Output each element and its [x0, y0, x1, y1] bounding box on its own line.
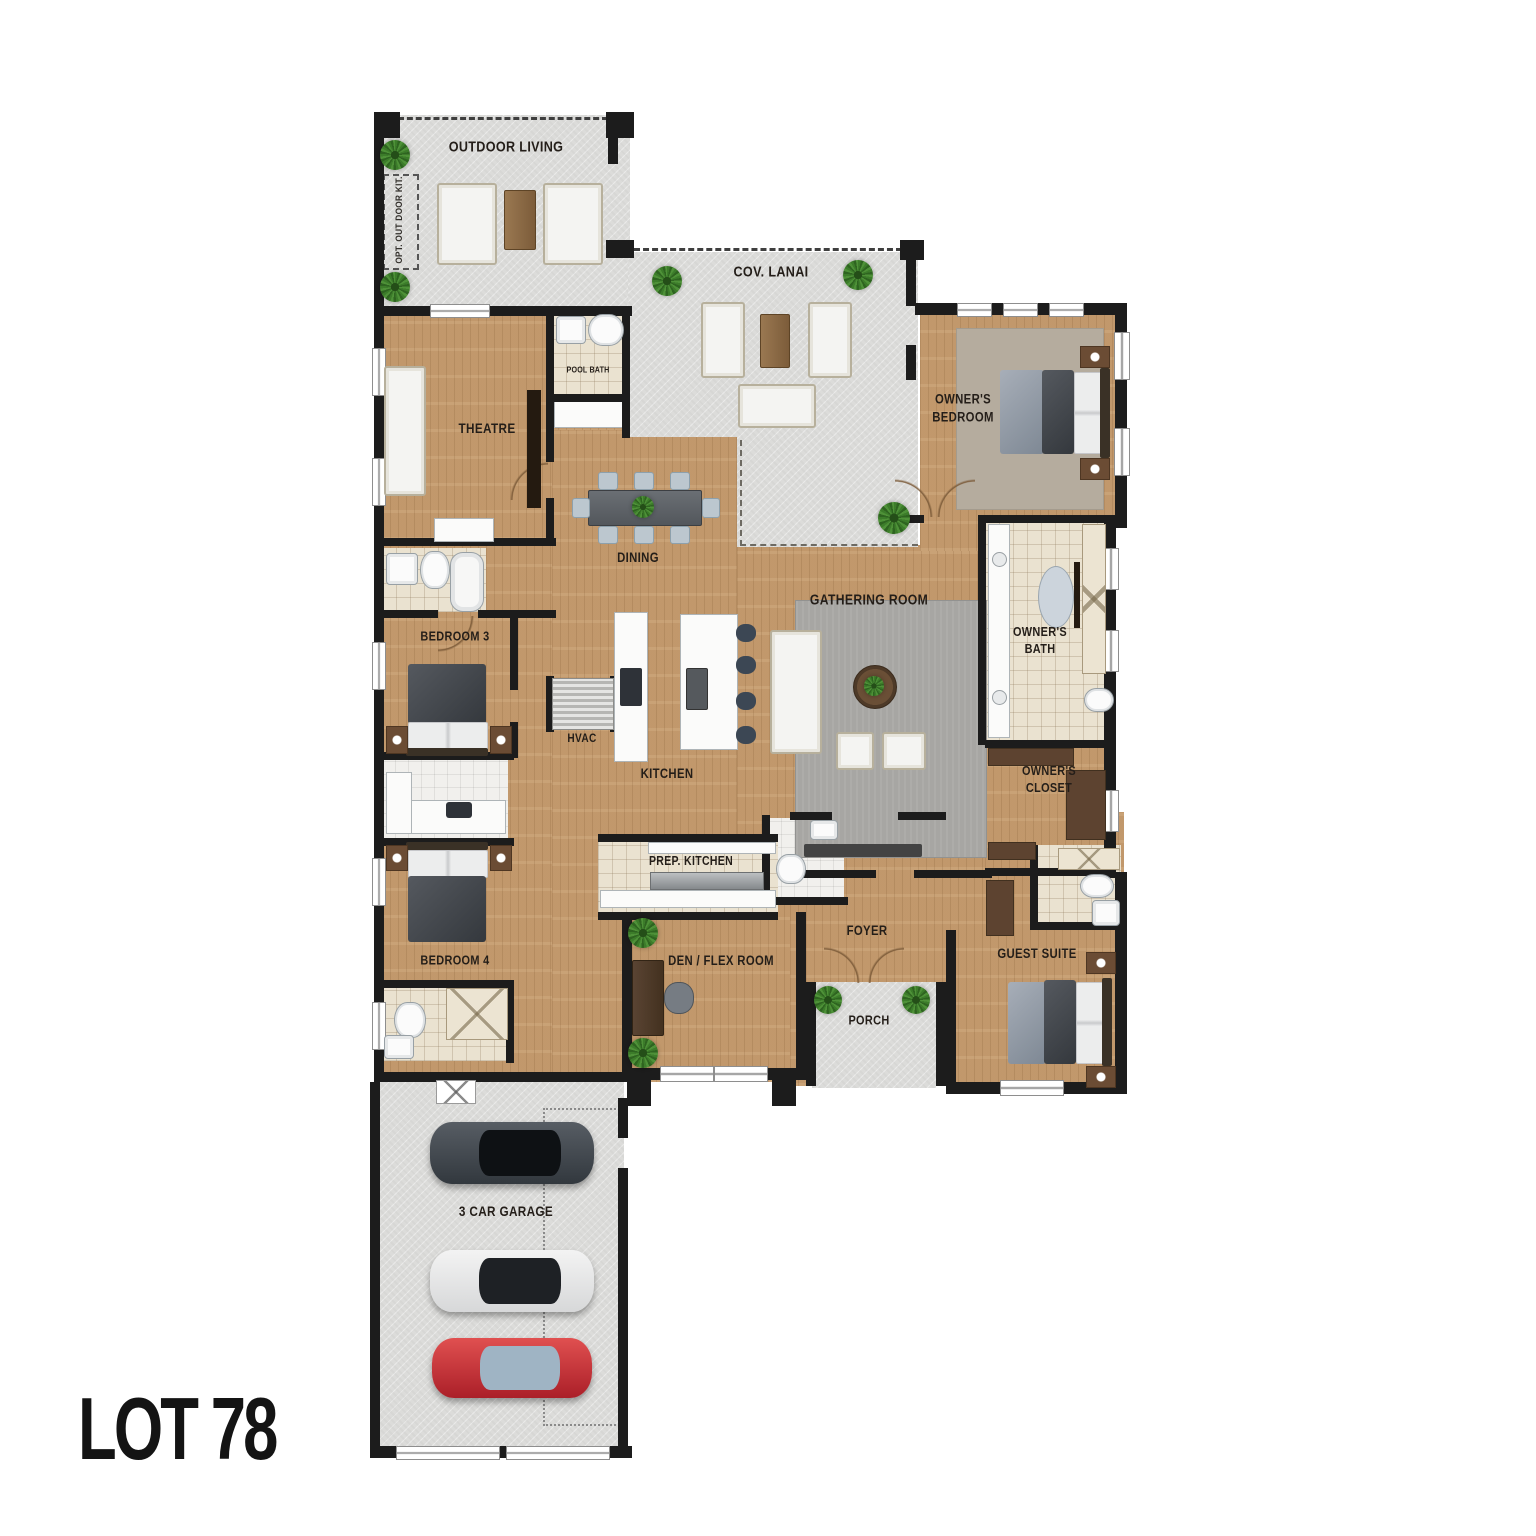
window: [1000, 1080, 1064, 1096]
dining-chair: [598, 472, 618, 490]
bed-blanket: [1042, 370, 1074, 454]
room-label-opt-outdoor-kit: OPT. OUT DOOR KIT.: [394, 176, 404, 263]
range: [620, 668, 642, 706]
shower-icon: [1082, 524, 1106, 674]
door-arc-icon: [935, 477, 975, 517]
bed-blanket: [1044, 980, 1076, 1064]
bed-icon: [408, 876, 486, 942]
room-label-gathering-room: GATHERING ROOM: [810, 592, 928, 611]
room-label-bedroom-4: BEDROOM 4: [420, 953, 489, 970]
bed-icon: [1000, 370, 1044, 454]
stool: [736, 726, 756, 744]
car-glass: [480, 1346, 560, 1390]
wall-segment: [985, 515, 1115, 523]
wall-segment: [790, 812, 832, 820]
prep-appliance: [650, 872, 764, 890]
room-label-owners-bedroom: OWNER'S BEDROOM: [932, 390, 994, 425]
room-label-garage: 3 CAR GARAGE: [459, 1202, 553, 1220]
window: [430, 304, 490, 318]
mudroom-bench: [436, 1080, 476, 1104]
car-glass: [479, 1130, 561, 1176]
room-label-outdoor-living: OUTDOOR LIVING: [449, 137, 564, 157]
wall-segment: [946, 930, 956, 1086]
wall-segment: [374, 1072, 628, 1082]
theatre-screen: [527, 390, 541, 508]
window: [372, 642, 386, 690]
sink-icon: [386, 553, 418, 585]
nightstand: [1086, 952, 1116, 974]
wall-segment: [370, 1082, 380, 1452]
shower-icon: [446, 988, 508, 1040]
plant-icon: [902, 986, 930, 1014]
plant-icon: [652, 266, 682, 296]
outdoor-table: [504, 190, 536, 250]
plant-icon: [628, 918, 658, 948]
wall-segment: [546, 306, 554, 402]
bed-headboard: [1102, 978, 1112, 1066]
sofa-icon: [808, 302, 852, 378]
garage-door: [506, 1446, 610, 1460]
bed-icon: [408, 664, 486, 724]
floor-hall: [920, 515, 986, 551]
bed-headboard: [406, 748, 488, 756]
car-icon-red: [432, 1338, 592, 1398]
toilet-icon: [1080, 874, 1114, 898]
sink-icon: [1092, 900, 1120, 926]
window: [1049, 303, 1084, 317]
sink-icon: [992, 552, 1007, 567]
sofa-icon: [738, 384, 816, 428]
room-label-cov-lanai: COV. LANAI: [733, 262, 808, 282]
wall-segment: [598, 912, 778, 920]
wall-segment: [552, 394, 630, 402]
bed-pillows: [408, 850, 488, 878]
closet-cabinet: [988, 842, 1036, 860]
prep-counter: [600, 890, 776, 908]
wall-segment: [374, 306, 384, 1082]
room-label-porch: PORCH: [848, 1013, 889, 1030]
nightstand: [386, 845, 408, 871]
dining-chair: [702, 498, 720, 518]
wall-segment: [627, 1078, 651, 1106]
wall-segment: [618, 1168, 628, 1458]
car-icon-white: [430, 1250, 594, 1312]
sink-icon: [446, 802, 472, 818]
theatre-cabinet: [434, 518, 494, 542]
nightstand: [1080, 346, 1110, 368]
room-label-kitchen: KITCHEN: [641, 765, 694, 783]
wall-segment: [985, 740, 1107, 748]
cooktop: [686, 668, 708, 710]
wall-segment: [914, 870, 992, 878]
wall-segment: [382, 610, 438, 618]
bed-icon: [1008, 982, 1046, 1064]
tub-icon: [450, 552, 484, 612]
office-chair: [664, 982, 694, 1014]
sink-icon: [810, 820, 838, 840]
pool-bath-closet: [554, 398, 628, 428]
dining-chair: [598, 526, 618, 544]
bed-pillows: [1076, 982, 1104, 1064]
dining-chair: [634, 526, 654, 544]
nightstand: [490, 726, 512, 754]
toilet-icon: [420, 551, 450, 589]
wall-segment: [906, 345, 916, 380]
nightstand: [1086, 1066, 1116, 1088]
hvac-closet-doors: [552, 678, 614, 730]
floor-plan: OUTDOOR LIVING OPT. OUT DOOR KIT. COV. L…: [0, 0, 1536, 1536]
bed-headboard: [1100, 368, 1110, 458]
wall-segment: [936, 982, 946, 1086]
nightstand: [490, 845, 512, 871]
desk: [632, 960, 664, 1036]
vanity: [386, 772, 412, 834]
wall-segment: [978, 515, 986, 745]
window: [714, 1066, 768, 1082]
shower-divider: [1074, 562, 1080, 628]
room-label-owners-bath: OWNER'S BATH: [1013, 624, 1067, 658]
wall-segment: [598, 834, 778, 842]
plant-icon: [632, 496, 654, 518]
bed-pillows: [1074, 372, 1102, 454]
plant-icon: [878, 502, 910, 534]
sink-icon: [556, 316, 586, 344]
wall-segment: [608, 132, 618, 164]
window: [372, 858, 386, 906]
sink-icon: [992, 690, 1007, 705]
wall-segment: [546, 498, 554, 538]
theatre-sectional: [384, 366, 426, 496]
plant-icon: [380, 140, 410, 170]
car-glass: [479, 1258, 561, 1304]
window: [1114, 332, 1130, 380]
dining-chair: [634, 472, 654, 490]
room-label-den-flex: DEN / FLEX ROOM: [668, 952, 774, 970]
dining-chair: [670, 526, 690, 544]
plant-icon: [380, 272, 410, 302]
stool: [736, 692, 756, 710]
dining-chair: [572, 498, 590, 518]
plant-icon: [814, 986, 842, 1014]
car-icon-dark: [430, 1122, 594, 1184]
outdoor-living-open-edge: [398, 117, 608, 120]
tub-icon: [1038, 566, 1074, 628]
media-console: [804, 844, 922, 857]
room-label-dining: DINING: [617, 549, 659, 567]
door-arc-icon: [824, 945, 862, 983]
sofa-icon: [543, 183, 603, 265]
wall-segment: [382, 980, 514, 988]
window: [957, 303, 992, 317]
stool: [736, 656, 756, 674]
wall-segment: [898, 812, 946, 820]
window: [660, 1066, 714, 1082]
sofa-icon: [437, 183, 497, 265]
wall-segment: [772, 1078, 796, 1106]
room-label-bedroom-3: BEDROOM 3: [420, 629, 489, 646]
wall-segment: [906, 256, 916, 306]
window: [1003, 303, 1038, 317]
stool: [736, 624, 756, 642]
toilet-icon: [776, 854, 806, 884]
hall-closet: [986, 880, 1014, 936]
room-label-foyer: FOYER: [847, 922, 888, 940]
room-label-guest-suite: GUEST SUITE: [997, 945, 1076, 963]
plant-icon: [864, 676, 884, 696]
room-label-prep-kitchen: PREP. KITCHEN: [649, 853, 733, 869]
wall-segment: [796, 912, 806, 1078]
armchair: [882, 732, 926, 770]
sink-icon: [384, 1035, 414, 1059]
room-label-hvac: HVAC: [567, 731, 596, 747]
wall-segment: [510, 614, 518, 690]
plant-icon: [843, 260, 873, 290]
wall-segment: [606, 240, 634, 258]
shower-icon: [1058, 848, 1120, 870]
wall-segment: [380, 306, 632, 316]
room-label-owners-closet: OWNER'S CLOSET: [1022, 763, 1076, 797]
door-arc-icon: [866, 945, 904, 983]
bed-headboard: [406, 842, 488, 850]
sofa-icon: [701, 302, 745, 378]
wall-segment: [546, 398, 554, 462]
toilet-icon: [588, 314, 624, 346]
lanai-open-edge: [634, 248, 902, 251]
nightstand: [386, 726, 408, 754]
plant-icon: [628, 1038, 658, 1068]
room-label-theatre: THEATRE: [458, 419, 515, 437]
wall-segment: [618, 1098, 628, 1138]
lanai-table: [760, 314, 790, 368]
toilet-icon: [1084, 688, 1114, 712]
sofa-icon: [770, 630, 822, 754]
dining-chair: [670, 472, 690, 490]
room-label-pool-bath: POOL BATH: [567, 364, 610, 375]
lot-label: LOT 78: [78, 1378, 275, 1480]
nightstand: [1080, 458, 1110, 480]
garage-door: [396, 1446, 500, 1460]
window: [1114, 428, 1130, 476]
armchair: [836, 732, 874, 770]
toilet-icon: [394, 1002, 426, 1038]
